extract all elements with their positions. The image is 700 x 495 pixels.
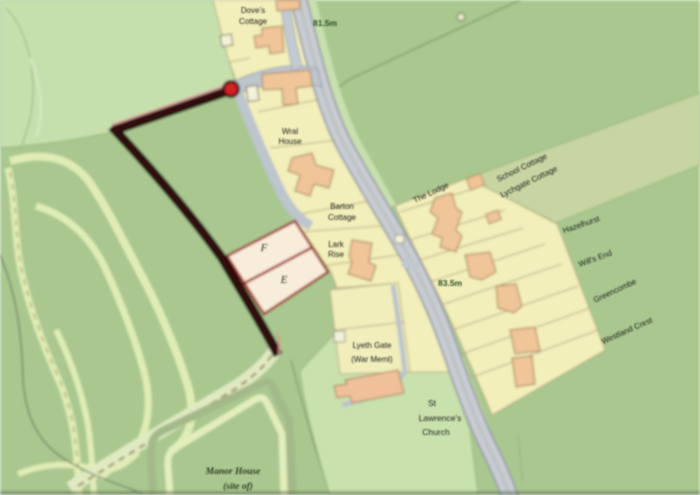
- svg-text:Manor House: Manor House: [205, 467, 261, 477]
- svg-text:(War Meml): (War Meml): [351, 355, 393, 364]
- svg-text:St: St: [428, 398, 437, 408]
- svg-text:House: House: [278, 137, 302, 146]
- svg-text:Church: Church: [422, 427, 450, 437]
- svg-text:81.5m: 81.5m: [313, 18, 338, 28]
- svg-text:Wral: Wral: [282, 127, 299, 136]
- svg-text:Lawrence's: Lawrence's: [419, 413, 462, 423]
- svg-text:Lyeth Gate: Lyeth Gate: [353, 341, 392, 350]
- svg-text:Rise: Rise: [328, 250, 345, 259]
- svg-text:(site of): (site of): [223, 481, 253, 492]
- svg-text:E: E: [280, 274, 288, 286]
- svg-text:Cottage: Cottage: [328, 213, 357, 222]
- svg-text:Dove's: Dove's: [241, 6, 265, 15]
- svg-text:Barton: Barton: [330, 202, 354, 211]
- svg-text:Lark: Lark: [328, 240, 345, 249]
- svg-text:F: F: [260, 242, 268, 254]
- svg-text:83.5m: 83.5m: [438, 278, 463, 288]
- svg-text:Cottage: Cottage: [239, 17, 268, 26]
